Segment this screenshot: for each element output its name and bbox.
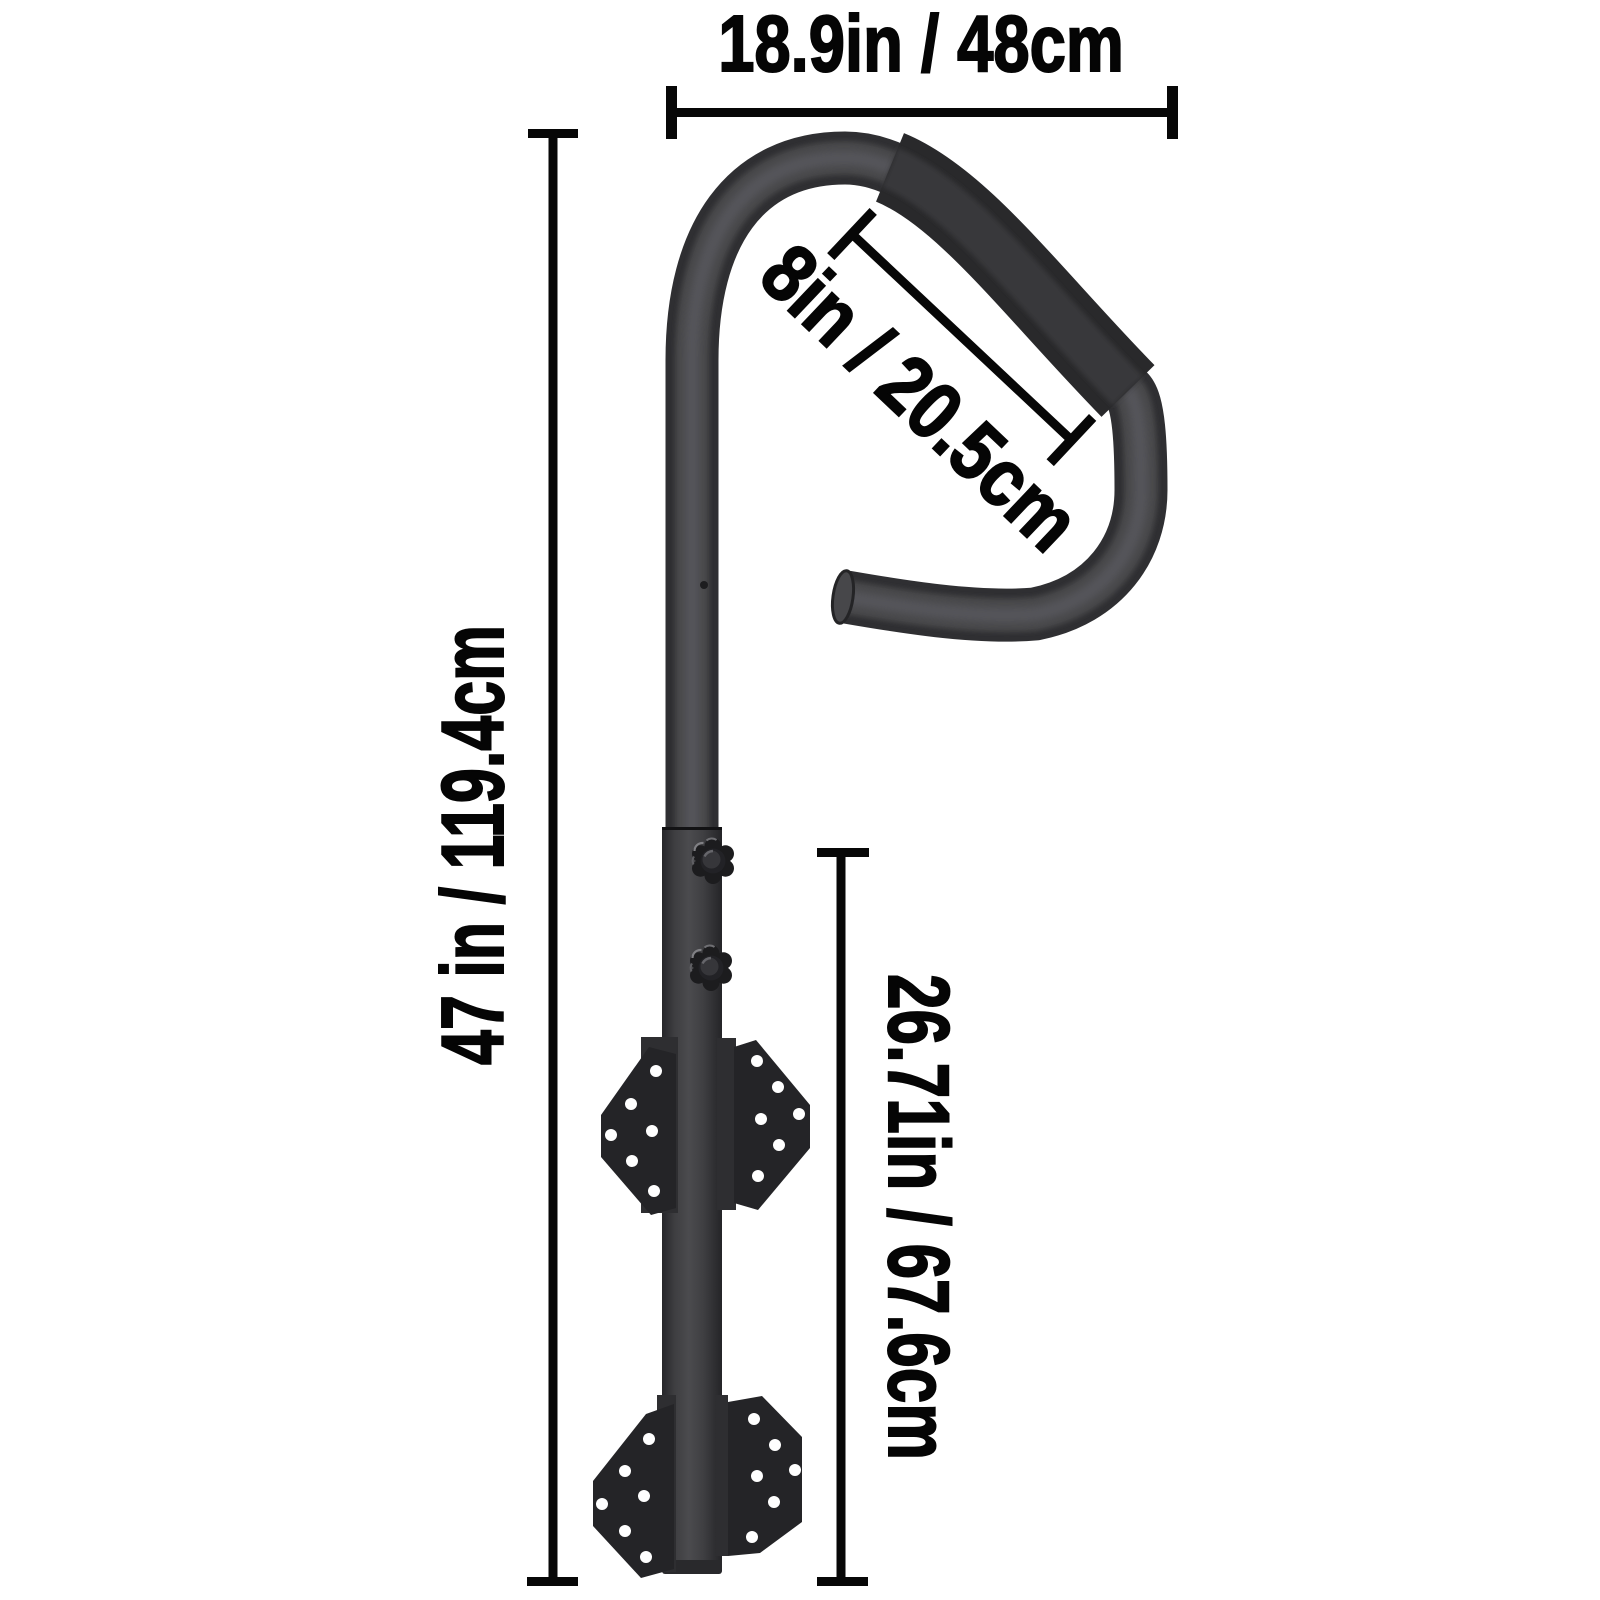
svg-text:47 in / 119.4cm: 47 in / 119.4cm [424,625,522,1065]
svg-text:26.71in / 67.6cm: 26.71in / 67.6cm [870,974,966,1460]
svg-text:18.9in / 48cm: 18.9in / 48cm [718,0,1124,89]
